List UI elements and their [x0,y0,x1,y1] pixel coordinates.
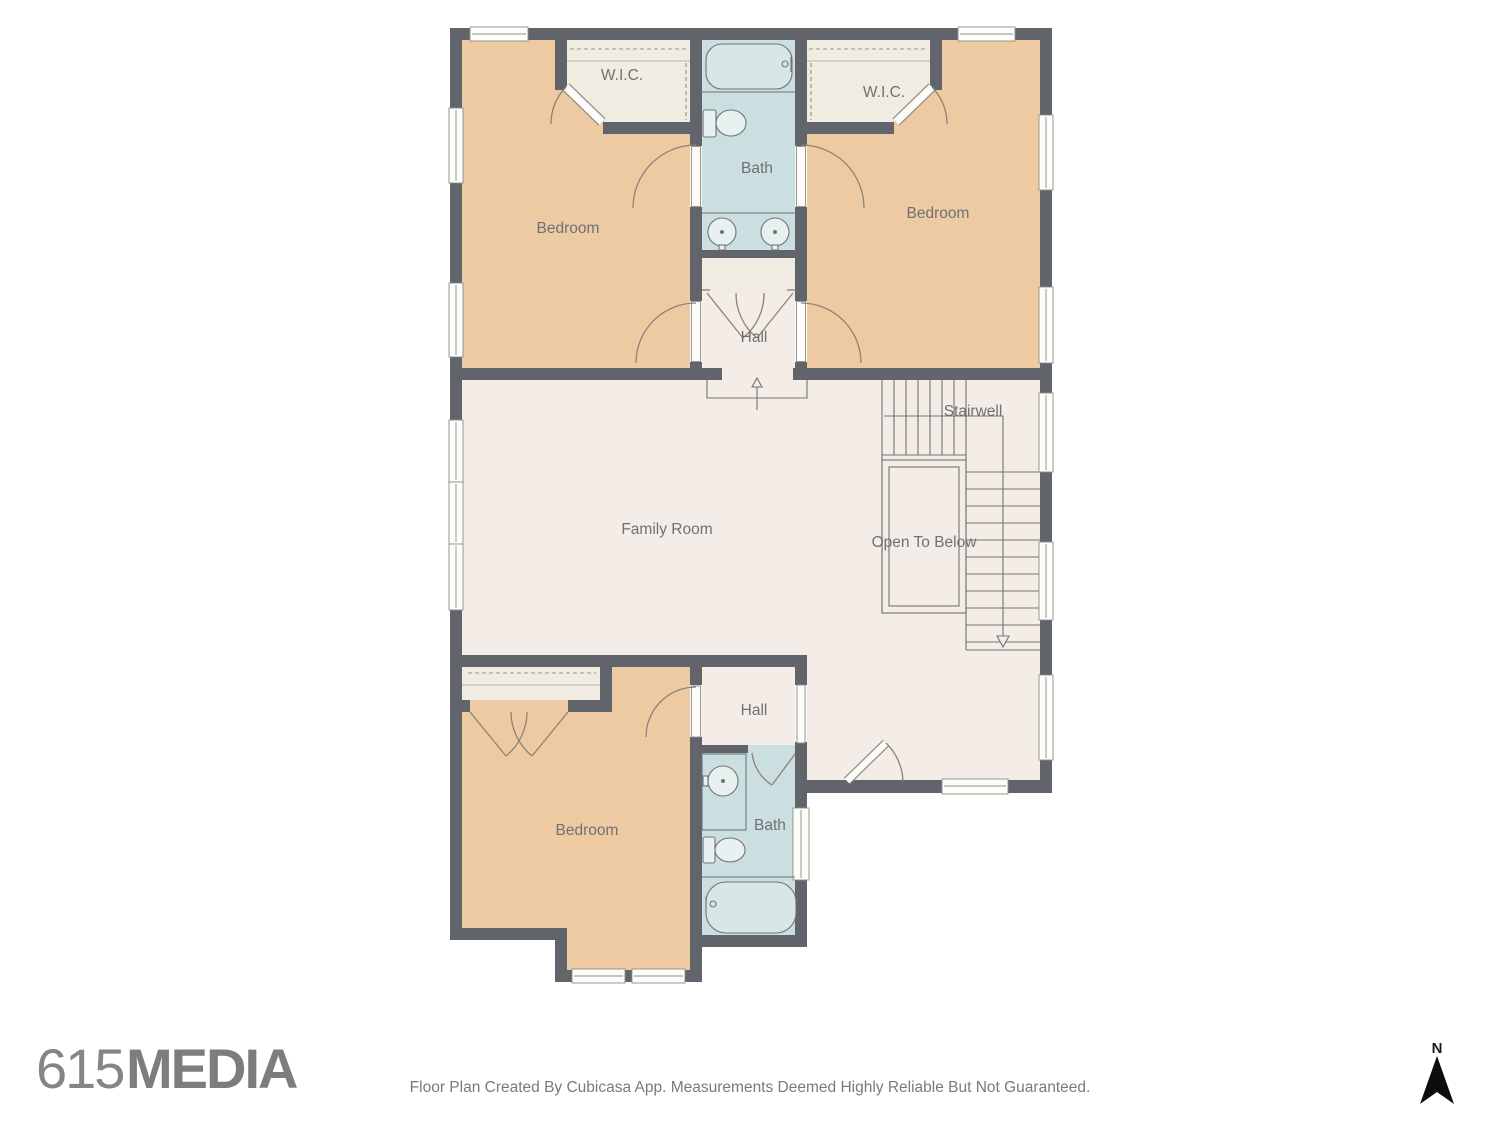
window [958,27,1015,41]
disclaimer-text: Floor Plan Created By Cubicasa App. Meas… [410,1079,1091,1096]
window [449,108,463,183]
window [1039,393,1053,472]
toilet-icon [703,837,715,863]
room-label-hall-bottom: Hall [741,702,768,719]
window [449,544,463,610]
room-label-wic-right: W.I.C. [863,84,905,101]
north-label: N [1432,1040,1443,1057]
sink-drain-icon [773,230,777,234]
window [1039,115,1053,190]
north-arrow-icon [1420,1056,1454,1104]
door-leaf [797,147,806,207]
room-label-open-to-below: Open To Below [872,534,978,551]
logo-word: MEDIA [126,1037,297,1100]
bathtub-icon [706,882,796,933]
footer: 615 MEDIA Floor Plan Created By Cubicasa… [36,1037,1454,1104]
room-label-bedroom-top-right: Bedroom [907,205,970,222]
linen-closet-floor [702,258,795,293]
toilet-icon [703,110,716,137]
tub-faucet-icon [782,61,788,67]
room-label-bedroom-bottom: Bedroom [556,822,619,839]
wall-segment [930,28,942,90]
window [470,27,528,41]
floor-plan-page: W.I.C. W.I.C. Bath Bedroom Bedroom Hall … [0,0,1500,1125]
window [449,482,463,544]
window [449,283,463,357]
wall-segment [555,28,567,90]
door-leaf [692,686,701,737]
wall-segment [795,122,894,134]
room-label-stairwell: Stairwell [944,403,1003,420]
floor-plan-canvas: W.I.C. W.I.C. Bath Bedroom Bedroom Hall … [0,0,1500,1125]
room-label-hall-top: Hall [741,329,768,346]
toilet-icon [716,110,746,136]
window [632,969,685,983]
sink-faucet-icon [719,245,725,250]
wall-segment [450,700,470,712]
window [449,420,463,482]
wall-segment [690,935,807,947]
window [572,969,625,983]
bath-bottom-door-gap [748,745,795,753]
room-label-wic-left: W.I.C. [601,67,643,84]
logo-number: 615 [36,1037,123,1100]
room-label-bath-top: Bath [741,160,773,177]
door-leaf [797,685,805,743]
wall-segment [450,368,722,380]
toilet-icon [715,838,745,862]
bedroom-bottom-ext-floor [567,928,690,970]
window [1039,675,1053,760]
wall-segment [690,40,702,146]
sink-faucet-icon [772,245,778,250]
wall-segment [690,737,702,935]
window [793,808,809,880]
sink-faucet-icon [703,776,708,786]
wall-segment [795,742,807,780]
door-leaf [692,147,701,207]
window [942,779,1008,794]
bathtub-icon [706,44,792,89]
wall-segment [795,655,807,685]
wall-segment [793,368,1052,380]
room-label-family-room: Family Room [621,521,712,538]
sink-drain-icon [720,230,724,234]
room-floors [462,40,1040,970]
window [1039,287,1053,363]
wall-segment [690,250,807,258]
room-label-bath-bottom: Bath [754,817,786,834]
room-label-bedroom-top-left: Bedroom [537,220,600,237]
wall-segment [450,928,567,940]
window [1039,542,1053,620]
wall-segment [603,122,702,134]
wall-segment [568,700,612,712]
door-leaf [797,302,806,362]
wall-segment [690,655,702,685]
sink-drain-icon [721,779,725,783]
wall-segment [450,655,807,667]
door-leaf [692,302,701,362]
tub-faucet-icon [710,901,716,907]
wall-segment [702,745,748,753]
wall-segment [807,780,1052,793]
bedroom-closet-floor [462,667,600,700]
